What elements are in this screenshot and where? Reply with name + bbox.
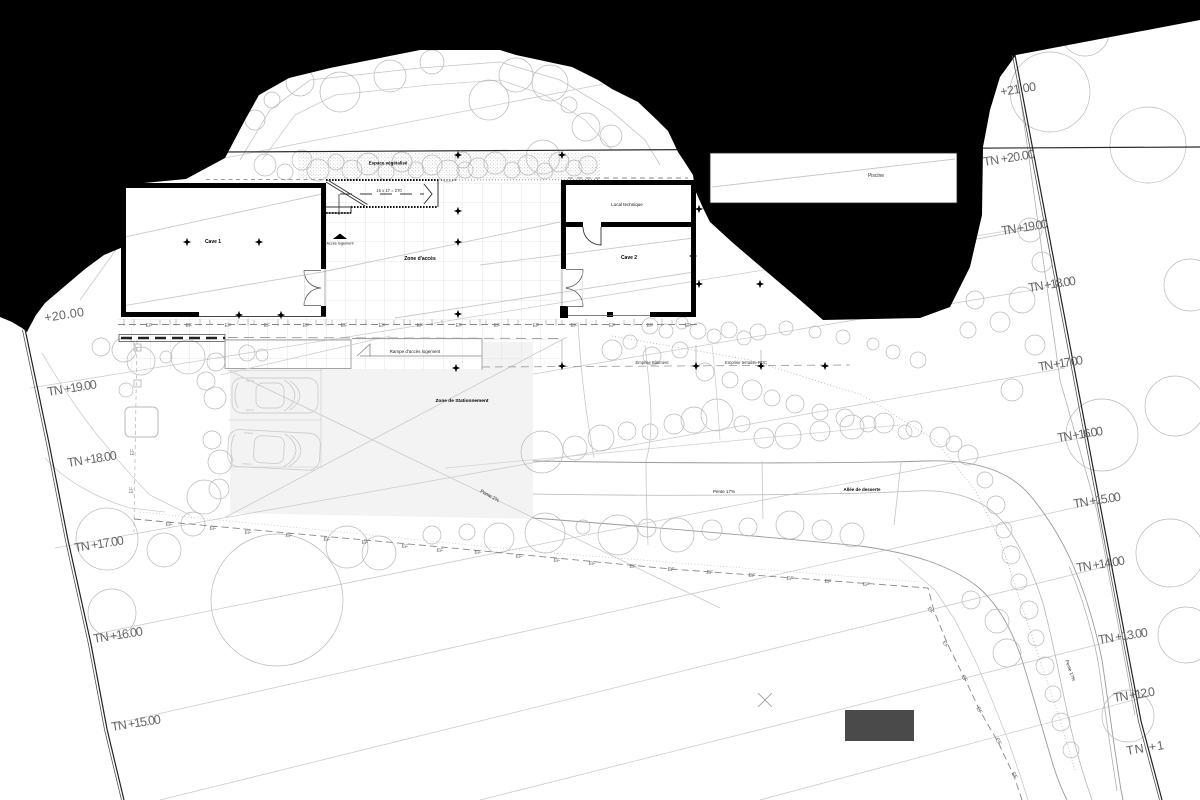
svg-text:EF: EF <box>494 323 502 329</box>
svg-text:EF: EF <box>379 323 387 329</box>
svg-text:Cave 2: Cave 2 <box>621 255 637 261</box>
svg-text:Rampe d'accès logement: Rampe d'accès logement <box>390 349 441 354</box>
svg-text:EF: EF <box>264 323 272 329</box>
svg-text:EF: EF <box>553 558 561 565</box>
svg-text:EF: EF <box>629 564 637 571</box>
svg-text:EF: EF <box>588 561 596 568</box>
svg-text:EF: EF <box>401 544 409 551</box>
svg-text:EF: EF <box>129 487 135 493</box>
svg-text:EF: EF <box>862 582 870 589</box>
svg-text:Espace végétalisé: Espace végétalisé <box>369 161 408 166</box>
svg-text:EF: EF <box>285 533 293 540</box>
svg-text:EF: EF <box>609 323 617 329</box>
svg-text:EF: EF <box>417 323 425 329</box>
svg-text:EF: EF <box>303 323 311 329</box>
svg-text:EF: EF <box>571 323 579 329</box>
svg-text:Emprise Bâtiment: Emprise Bâtiment <box>635 360 669 365</box>
svg-text:Allée de desserte: Allée de desserte <box>843 487 881 492</box>
svg-text:EF: EF <box>786 576 794 583</box>
svg-text:Zone d'accès: Zone d'accès <box>404 256 436 262</box>
svg-text:EF: EF <box>647 323 655 329</box>
svg-text:EF: EF <box>685 323 693 329</box>
svg-text:EF: EF <box>244 530 252 537</box>
svg-text:16 x 17 = 270: 16 x 17 = 270 <box>376 188 402 193</box>
svg-text:EF: EF <box>186 323 194 329</box>
svg-text:EF: EF <box>130 449 136 455</box>
svg-text:Piscine: Piscine <box>868 173 884 179</box>
svg-text:Zone de Stationnement: Zone de Stationnement <box>435 398 488 404</box>
svg-text:Accès logement: Accès logement <box>326 242 354 246</box>
svg-text:EF: EF <box>209 526 217 533</box>
svg-text:EF: EF <box>323 537 331 544</box>
svg-text:EF: EF <box>436 548 444 555</box>
svg-text:Cave 1: Cave 1 <box>205 239 221 245</box>
svg-text:EF: EF <box>456 323 464 329</box>
svg-text:EF: EF <box>748 573 756 580</box>
svg-text:EF: EF <box>146 323 154 329</box>
svg-text:EF: EF <box>706 570 714 577</box>
svg-text:EF: EF <box>474 550 482 557</box>
svg-text:EF: EF <box>165 522 173 529</box>
svg-text:EF: EF <box>533 323 541 329</box>
svg-text:EF: EF <box>341 323 349 329</box>
svg-text:EF: EF <box>515 554 523 561</box>
svg-text:Pente 17%: Pente 17% <box>713 489 735 494</box>
svg-text:Local technique: Local technique <box>611 202 643 207</box>
svg-text:EF: EF <box>361 540 369 547</box>
svg-text:EF: EF <box>824 579 832 586</box>
svg-text:EF: EF <box>667 567 675 574</box>
svg-text:EF: EF <box>225 323 233 329</box>
